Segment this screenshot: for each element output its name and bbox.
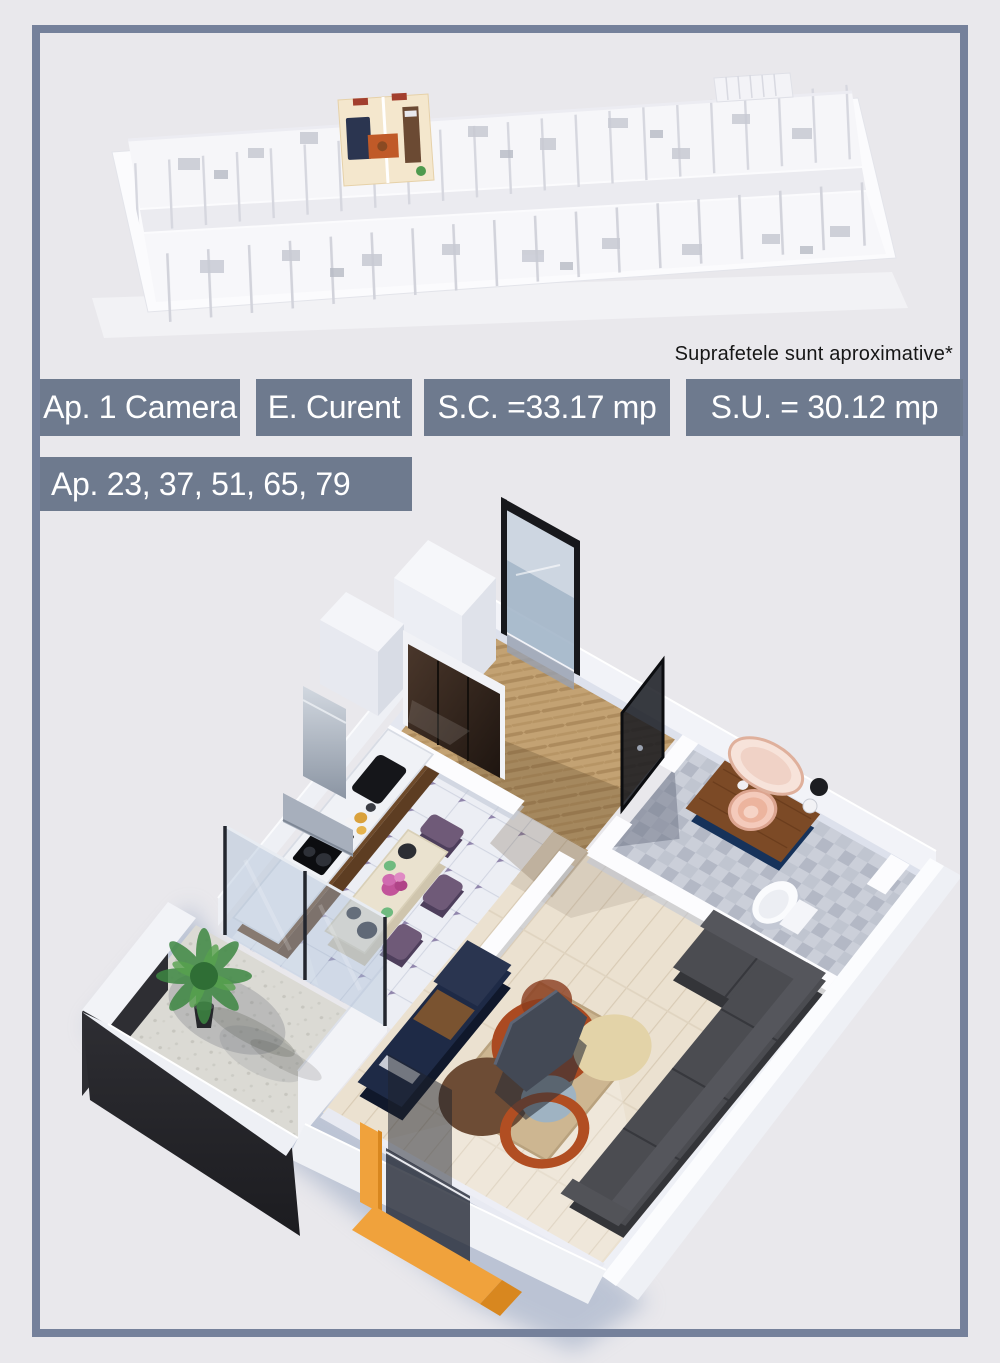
building-highlighted-apartment: [338, 92, 434, 186]
bathroom-sconce: [810, 778, 828, 796]
building-stairwell: [714, 73, 793, 102]
floorplan-scene: [0, 0, 1000, 1363]
badge-usable-surface: S.U. = 30.12 mp: [686, 379, 963, 436]
badge-apartment-type: Ap. 1 Camera: [40, 379, 240, 436]
building-floor-render: [92, 73, 908, 338]
surface-disclaimer-note: Suprafetele sunt aproximative*: [675, 343, 953, 366]
floorplan-page: Suprafetele sunt aproximative* Ap. 1 Cam…: [0, 0, 1000, 1363]
badge-construction-stage: E. Curent: [256, 379, 412, 436]
badge-built-surface: S.C. =33.17 mp: [424, 379, 670, 436]
badge-apartment-numbers: Ap. 23, 37, 51, 65, 79: [40, 457, 412, 511]
apartment-3d-render: [82, 497, 962, 1352]
